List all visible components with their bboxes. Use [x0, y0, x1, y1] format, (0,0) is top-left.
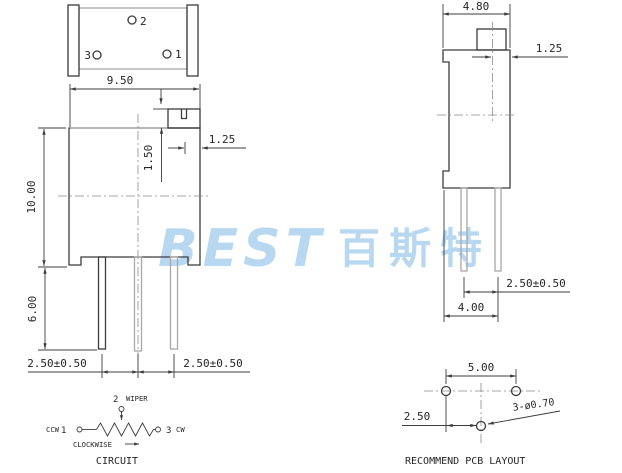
side-pin-pitch-dimension: 2.50±0.50 — [464, 277, 570, 322]
watermark-latin: BEST — [158, 219, 326, 279]
dim-pin-length: 6.00 — [26, 296, 39, 323]
trimmer-dimension-drawing: BEST 百斯特 2 3 1 9.50 — [0, 0, 622, 473]
wiper-terminal — [119, 407, 124, 412]
top-view-pin3-hole — [93, 51, 101, 59]
dim-side-pin-pitch: 2.50±0.50 — [506, 277, 566, 290]
circuit-wiper-label: WIPER — [126, 394, 148, 403]
circuit-cw-label: CW — [176, 425, 185, 434]
top-view-body — [79, 8, 187, 69]
screw-slot — [182, 109, 187, 119]
watermark-cjk: 百斯特 — [338, 224, 491, 273]
row-offset-dimension: 2.50 — [402, 396, 477, 432]
top-view-right-flange — [187, 5, 198, 76]
clockwise-label: CLOCKWISE — [73, 440, 112, 449]
watermark: BEST 百斯特 — [158, 219, 491, 279]
circuit-pin3-label: 3 — [166, 426, 171, 436]
front-pin-left — [99, 257, 106, 349]
hole-size-callout: 3-ø0.70 — [488, 397, 560, 424]
side-pin-right — [495, 188, 501, 271]
pin1-label: 1 — [175, 48, 182, 61]
width-dimension: 9.50 — [70, 74, 200, 127]
height-dimension: 10.00 — [25, 128, 67, 267]
pin3-label: 3 — [84, 49, 91, 62]
pcb-layout: 5.00 2.50 3-ø0.70 RECOMMEND PCB LAYOUT — [402, 361, 560, 467]
dim-side-base: 4.00 — [458, 301, 485, 314]
side-body-outline — [443, 50, 510, 188]
pin-pitch-dimensions-front: 2.50±0.50 2.50±0.50 — [27, 354, 250, 378]
dim-side-width: 4.80 — [463, 0, 490, 13]
pin-length-dimension: 6.00 — [26, 268, 97, 350]
side-view: 4.80 1.25 2.50±0.50 4.00 — [437, 0, 570, 322]
dim-front-height: 10.00 — [25, 180, 38, 213]
dim-slot-offset-side: 1.25 — [536, 42, 563, 55]
circuit-ccw-label: CCW — [46, 425, 60, 434]
hole-pitch-dimension: 5.00 — [446, 361, 516, 384]
side-screw-knob — [477, 29, 506, 50]
screw-inset-dimension: 1.50 — [142, 128, 162, 182]
circuit-pin1-label: 1 — [61, 426, 66, 436]
circuit-diagram: 2 WIPER CCW 1 3 CW CLOCKWISE CIRCUIT — [46, 394, 185, 467]
dim-screw-inset: 1.50 — [142, 145, 155, 172]
pin1-terminal — [77, 427, 82, 432]
dim-hole-pitch: 5.00 — [468, 361, 495, 374]
dim-row-offset: 2.50 — [404, 410, 431, 423]
dim-slot-offset-front: 1.25 — [209, 133, 236, 146]
top-view-left-flange — [68, 5, 79, 76]
circuit-title: CIRCUIT — [96, 456, 138, 467]
resistor-zigzag — [97, 423, 154, 436]
dim-top-width: 9.50 — [107, 74, 134, 87]
circuit-pin2-label: 2 — [113, 395, 118, 405]
dim-hole-size: 3-ø0.70 — [512, 397, 555, 414]
dim-pitch-left: 2.50±0.50 — [27, 357, 87, 370]
top-view-pin1-hole — [163, 50, 171, 58]
pcb-layout-title: RECOMMEND PCB LAYOUT — [405, 456, 525, 467]
dim-pitch-right: 2.50±0.50 — [183, 357, 243, 370]
top-view-pin2-hole — [128, 16, 136, 24]
slot-offset-dimension-front: 1.25 — [168, 133, 246, 154]
pin2-label: 2 — [140, 15, 147, 28]
technical-drawing-sheet: BEST 百斯特 2 3 1 9.50 — [0, 0, 622, 473]
pin3-terminal — [156, 427, 161, 432]
